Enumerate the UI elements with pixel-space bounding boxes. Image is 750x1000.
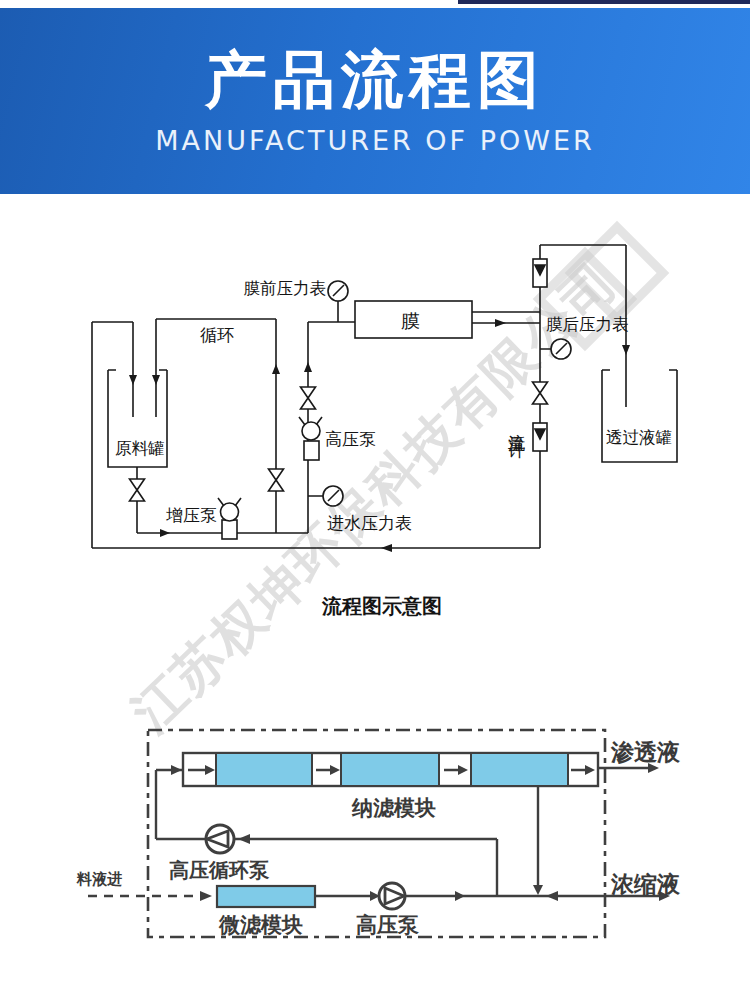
pipe-membrane-outlets [472, 245, 626, 548]
pressure-gauge-icon [323, 486, 343, 506]
diagram-caption: 流程图示意图 [307, 593, 457, 620]
nf-module-segment [216, 753, 312, 786]
pressure-gauge-icon [551, 339, 571, 359]
rotameter-icon [533, 423, 547, 451]
top-accent-strip [458, 0, 750, 4]
label-high-pressure-pump: 高压泵 [325, 428, 376, 451]
label-permeate-out: 渗透液 [611, 737, 680, 768]
label-pre-membrane-gauge: 膜前压力表 [240, 278, 326, 300]
label-concentrate-out: 浓缩液 [611, 869, 680, 900]
hp-circulation-pump-icon [206, 825, 234, 853]
valve-icon [533, 382, 548, 404]
label-feed-in: 料液进 [77, 870, 122, 889]
nf-module-segment [341, 753, 439, 786]
high-pressure-pump-icon [299, 417, 322, 460]
pipe-feed-line [137, 322, 355, 533]
label-mf-module: 微滤模块 [219, 911, 303, 939]
valve-icon [130, 479, 145, 501]
booster-pump-icon [218, 498, 241, 539]
hp-pump-icon [379, 883, 405, 909]
page-subtitle: MANUFACTURER OF POWER [155, 125, 594, 156]
label-permeate-tank: 透过液罐 [606, 427, 672, 449]
page: { "header": { "title": "产品流程图", "subtitl… [0, 0, 750, 1000]
valve-icon [269, 469, 284, 491]
label-post-membrane-gauge: 膜后压力表 [546, 314, 629, 336]
rotameter-icon [533, 259, 547, 287]
page-title: 产品流程图 [205, 46, 545, 114]
pipe-train-inlet [156, 770, 183, 839]
header-banner: 产品流程图 MANUFACTURER OF POWER [0, 8, 750, 194]
label-hp-pump: 高压泵 [356, 911, 419, 939]
mf-module-box [217, 886, 315, 907]
label-booster-pump: 增压泵 [166, 504, 217, 527]
valve-icon [301, 387, 316, 409]
pressure-gauge-icon [328, 281, 348, 301]
label-hp-circulation-pump: 高压循环泵 [169, 857, 269, 884]
nf-module-segment [471, 753, 568, 786]
label-flow-meter: 流量计 [506, 420, 529, 432]
label-inlet-gauge: 进水压力表 [327, 512, 412, 535]
label-circulation: 循环 [200, 324, 234, 347]
label-raw-tank: 原料罐 [115, 438, 165, 460]
label-nf-module: 纳滤模块 [352, 794, 436, 822]
membrane-flow-diagram [0, 200, 750, 650]
label-membrane: 膜 [401, 309, 420, 335]
